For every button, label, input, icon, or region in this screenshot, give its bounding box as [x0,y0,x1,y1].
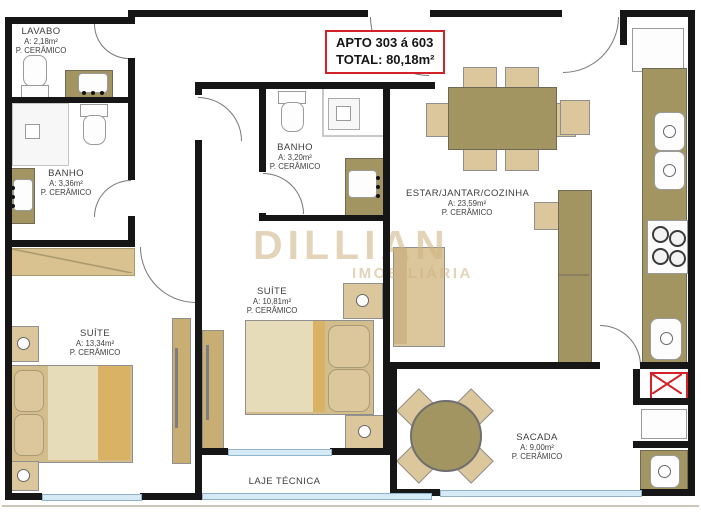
wall-segment [633,441,695,448]
wall-segment [140,493,197,500]
pillow [14,370,44,412]
wall-segment [5,493,42,500]
room-label-suite2: SUÍTE A: 10,81m² P. CERÂMICO [232,286,312,316]
room-floor: P. CERÂMICO [55,348,135,357]
wall-segment [620,10,695,17]
toilet-bowl [23,55,47,87]
wall-segment [620,10,627,45]
side-cabinet [560,100,590,135]
room-name: BANHO [255,142,335,153]
dining-chair [505,147,539,171]
fridge [632,28,684,72]
faucet-dot [100,91,104,95]
room-name: ESTAR/JANTAR/COZINHA [406,188,528,199]
wall-segment [390,362,397,496]
faucet-dot [91,91,95,95]
wall-segment [430,10,562,17]
pillow [328,369,370,412]
stove-burner [652,248,669,265]
room-label-banho2: BANHO A: 3,20m² P. CERÂMICO [255,142,335,172]
wardrobe [11,248,135,276]
sink-drain [663,125,676,138]
room-label-lavabo: LAVABO A: 2,18m² P. CERÂMICO [9,26,73,56]
toilet-bowl [281,102,304,132]
door-swing [140,247,196,303]
door-swing [563,17,619,73]
room-area: A: 23,59m² [406,199,528,208]
shower-partition [322,89,324,137]
wall-segment [128,10,368,17]
stool [534,202,560,230]
wall-segment [195,455,202,500]
room-floor: P. CERÂMICO [232,306,312,315]
nightstand-knob [17,337,30,350]
pillow [14,414,44,456]
room-name: BANHO [30,168,102,179]
wall-segment [383,82,390,455]
bed-runner [313,321,325,412]
room-area: A: 2,18m² [9,37,73,46]
wall-segment [640,362,695,369]
wall-segment [5,17,12,500]
faucet-dot [376,194,380,198]
shower-stall [12,103,69,166]
wall-segment [259,215,390,221]
sink-basin [78,73,108,93]
utility-box [641,409,687,439]
wall-segment [688,10,695,496]
faucet-dot [376,176,380,180]
dining-table [448,87,557,150]
room-floor: P. CERÂMICO [30,188,102,197]
bed-mattress [246,321,313,412]
apto-line1: APTO 303 á 603 [336,35,434,52]
room-name: SUÍTE [55,328,135,339]
room-label-sacada: SACADA A: 9,00m² P. CERÂMICO [497,432,577,462]
wardrobe-handle [175,348,178,428]
floor-plan: DILLIAN IMOBILIÁRIA LAVABO A: 2,18m² [0,0,701,516]
toilet-bowl [83,115,106,145]
window [228,449,332,456]
room-area: A: 10,81m² [232,297,312,306]
wall-segment [195,448,228,455]
watermark-subtitle: IMOBILIÁRIA [352,265,473,282]
wall-segment [195,82,435,89]
nightstand-knob [356,294,369,307]
wardrobe-handle [206,345,209,420]
window [440,490,642,497]
sink-basin [348,170,377,198]
wall-segment [195,140,202,455]
ground-line [2,505,699,507]
room-label-suite1: SUÍTE A: 13,34m² P. CERÂMICO [55,328,135,358]
room-floor: P. CERÂMICO [497,452,577,461]
room-name: LAVABO [9,26,73,37]
room-area: A: 9,00m² [497,443,577,452]
faucet-dot [376,185,380,189]
nightstand-knob [17,469,30,482]
apartment-title-box: APTO 303 á 603 TOTAL: 80,18m² [325,30,445,74]
shower-drain [25,124,40,139]
tank-drain [660,332,673,345]
door-swing [198,97,242,141]
room-name: SUÍTE [232,286,312,297]
room-floor: P. CERÂMICO [255,162,335,171]
wall-segment [633,398,695,405]
room-name: SACADA [497,432,577,443]
wall-segment [5,240,135,247]
dining-chair [463,147,497,171]
wall-segment [390,362,600,369]
sink-drain [663,164,676,177]
window [202,493,432,500]
shaft-marker [650,372,688,400]
room-floor: P. CERÂMICO [9,46,73,55]
shower-drain [336,106,351,121]
window [42,494,142,501]
bed-mattress [48,366,98,460]
watermark-name: DILLIAN [253,222,450,269]
faucet-dot [82,91,86,95]
door-swing [600,325,641,366]
tank-drain [658,465,671,478]
door-swing [263,173,304,214]
wall-segment [330,448,390,455]
apto-line2: TOTAL: 80,18m² [336,52,434,69]
stove-burner [652,226,669,243]
room-label-banho1: BANHO A: 3,36m² P. CERÂMICO [30,168,102,198]
room-area: A: 13,34m² [55,339,135,348]
shower-partition [322,135,383,137]
island-divider [559,274,589,276]
wall-segment [640,489,695,496]
pillow [328,325,370,368]
bed-runner [98,366,130,460]
stove-burner [669,250,686,267]
room-label-estar: ESTAR/JANTAR/COZINHA A: 23,59m² P. CERÂM… [406,188,528,218]
wall-segment [5,97,135,103]
room-area: A: 3,36m² [30,179,102,188]
room-name: LAJE TÉCNICA [222,476,347,487]
room-floor: P. CERÂMICO [406,208,528,217]
wall-segment [5,17,135,24]
room-area: A: 3,20m² [255,153,335,162]
room-label-laje: LAJE TÉCNICA [222,476,347,487]
round-table [410,400,482,472]
stove-burner [669,230,686,247]
door-swing [94,24,129,59]
nightstand-knob [358,425,371,438]
kitchen-island [558,190,592,365]
wall-segment [128,58,135,180]
